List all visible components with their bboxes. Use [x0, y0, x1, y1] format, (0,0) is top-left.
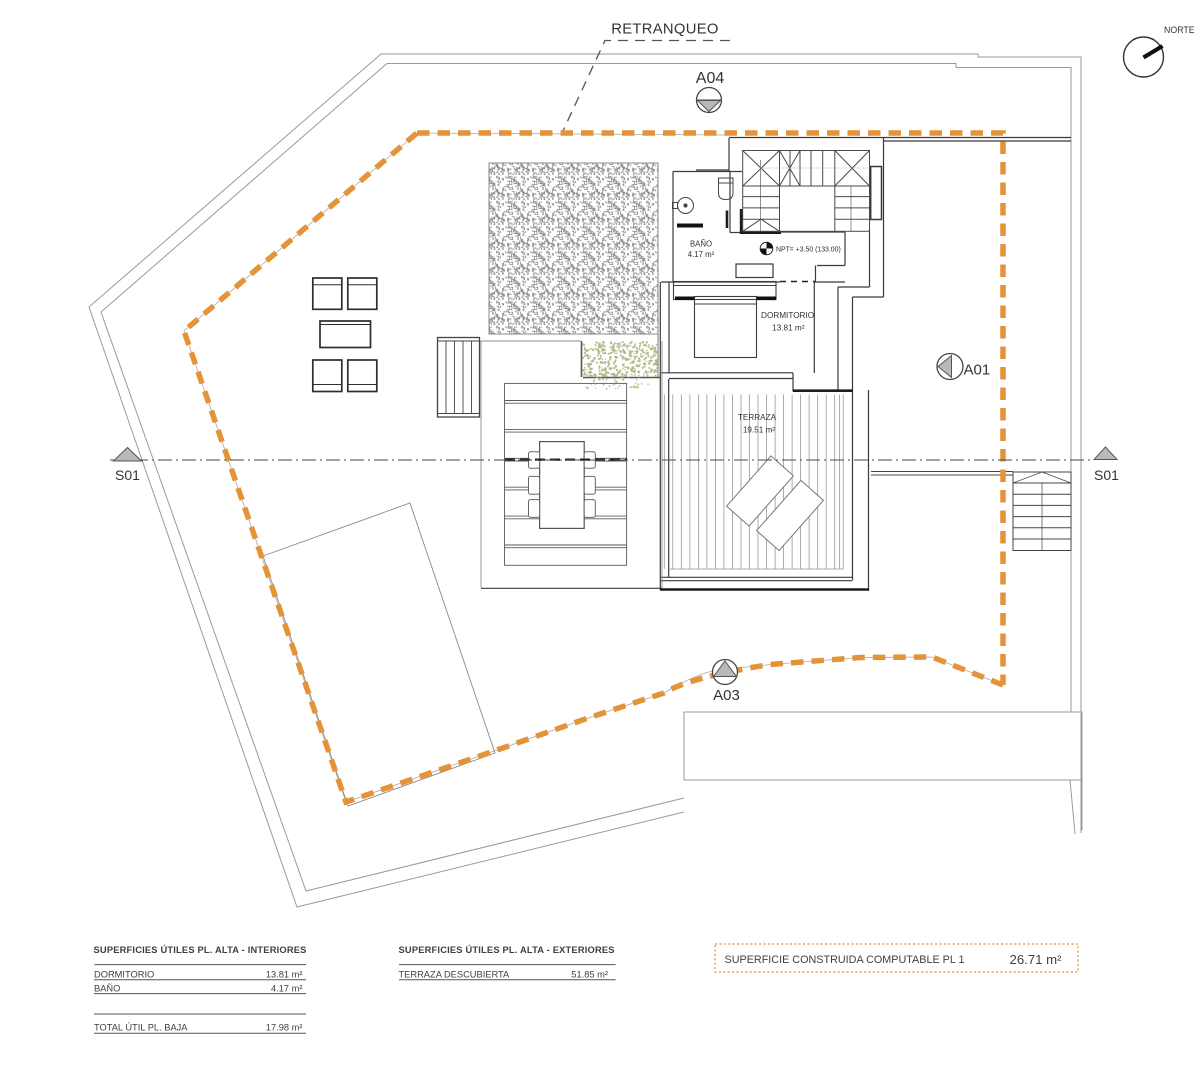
svg-text:A04: A04: [696, 70, 725, 87]
svg-text:NORTE: NORTE: [1164, 25, 1195, 35]
svg-text:SUPERFICIES ÚTILES PL. ALTA -: SUPERFICIES ÚTILES PL. ALTA - EXTERIORES: [399, 944, 615, 955]
svg-text:4.17 m²: 4.17 m²: [688, 250, 715, 259]
svg-text:A01: A01: [964, 362, 991, 379]
svg-text:13.81 m²: 13.81 m²: [266, 970, 303, 980]
svg-text:RETRANQUEO: RETRANQUEO: [611, 22, 718, 38]
svg-text:TERRAZA: TERRAZA: [738, 413, 777, 422]
svg-text:DORMITORIO: DORMITORIO: [761, 311, 814, 320]
svg-text:4.17 m²: 4.17 m²: [271, 983, 303, 993]
svg-text:BAÑO: BAÑO: [690, 240, 712, 249]
svg-text:TERRAZA DESCUBIERTA: TERRAZA DESCUBIERTA: [399, 970, 511, 980]
svg-text:DORMITORIO: DORMITORIO: [94, 970, 154, 980]
svg-text:BAÑO: BAÑO: [94, 983, 120, 993]
svg-text:26.71 m²: 26.71 m²: [1010, 952, 1063, 967]
svg-text:TOTAL ÚTIL PL. BAJA: TOTAL ÚTIL PL. BAJA: [94, 1023, 188, 1033]
svg-text:13.81 m²: 13.81 m²: [772, 324, 805, 333]
svg-text:SUPERFICIES ÚTILES PL. ALTA -: SUPERFICIES ÚTILES PL. ALTA - INTERIORES: [94, 944, 307, 955]
svg-text:S01: S01: [1094, 467, 1119, 483]
svg-text:A03: A03: [713, 687, 740, 704]
svg-text:17.98 m²: 17.98 m²: [266, 1023, 303, 1033]
svg-text:51.85 m²: 51.85 m²: [571, 970, 608, 980]
svg-text:SUPERFICIE CONSTRUIDA COMPUTAB: SUPERFICIE CONSTRUIDA COMPUTABLE PL 1: [725, 954, 965, 966]
svg-text:NPT= +3.50 (133.00): NPT= +3.50 (133.00): [776, 247, 841, 254]
svg-text:S01: S01: [115, 467, 140, 483]
svg-text:19.51 m²: 19.51 m²: [743, 426, 776, 435]
